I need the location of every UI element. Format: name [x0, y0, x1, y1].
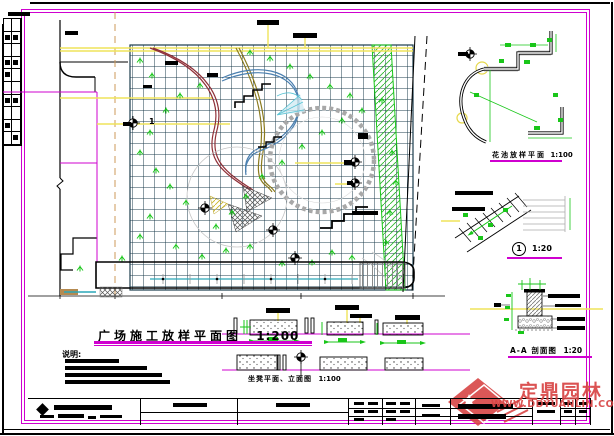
title-block-row-line	[560, 416, 590, 417]
title-block-divider	[348, 399, 349, 425]
stair-detail-bubble: 1	[512, 242, 526, 256]
titleblock-text-bar	[458, 414, 506, 419]
company-sub-bar	[40, 415, 54, 418]
titleblock-text-bar	[354, 410, 364, 413]
titleblock-text-bar	[579, 410, 587, 413]
title-block-row-line	[140, 412, 348, 413]
section-title: A-A 剖面图 1:20	[510, 345, 582, 356]
notes-line	[65, 373, 162, 377]
watermark-url: WWW.DDYUANLIN.COM	[491, 399, 614, 410]
notes-line	[65, 359, 119, 363]
bench-elevation-title: 坐凳平面、立面图 1:100	[248, 374, 341, 384]
stair-detail-scale: 1:20	[532, 244, 552, 253]
company-logo-diamond	[36, 403, 49, 416]
titleblock-text-bar	[564, 410, 572, 413]
title-block-divider	[382, 399, 383, 425]
planter-plan-underline	[490, 160, 562, 162]
notes-line	[65, 380, 170, 384]
titleblock-text-bar	[386, 410, 396, 413]
stair-plan-detail	[455, 193, 570, 252]
section-underline	[508, 356, 592, 358]
company-sub-bar	[88, 416, 96, 419]
titleblock-text-bar	[386, 402, 396, 405]
bench-elevation-title-text: 坐凳平面、立面图	[248, 375, 312, 383]
drawing-canvas	[0, 0, 614, 436]
section-scale: 1:20	[563, 346, 582, 355]
company-sub-bar	[100, 415, 122, 418]
company-name-bar	[54, 405, 112, 410]
steps-ladder	[360, 263, 405, 288]
titleblock-text-bar	[368, 402, 378, 405]
planter-plan-title: 花池放样平面 1:100	[492, 150, 573, 160]
titleblock-text-bar	[422, 404, 440, 407]
planter-plan-title-text: 花池放样平面	[492, 151, 546, 159]
stair-detail-number: 1	[516, 244, 522, 253]
titleblock-text-bar	[537, 410, 555, 413]
title-block-divider	[450, 399, 451, 425]
main-plan-underline-thin	[94, 345, 312, 346]
titleblock-text-bar	[368, 410, 378, 413]
stair-detail-underline	[507, 257, 562, 259]
section-title-text: A-A 剖面图	[510, 346, 557, 355]
title-block-divider	[415, 399, 416, 425]
titleblock-text-bar	[400, 402, 410, 405]
titleblock-text-bar	[422, 414, 440, 417]
titleblock-text-bar	[386, 418, 396, 421]
titleblock-text-bar	[354, 402, 364, 405]
titleblock-text-bar	[400, 410, 410, 413]
notes-line	[65, 366, 147, 370]
titleblock-text-bar	[173, 403, 207, 407]
main-plan-underline	[94, 341, 312, 344]
cad-sheet: 广场施工放样平面图 1:200 花池放样平面 1:100 1 1:20 A-A …	[0, 0, 614, 436]
grid-marker-number: 1	[149, 117, 155, 126]
company-sub-bar	[58, 414, 84, 418]
section-detail	[501, 278, 557, 334]
planter-wall-detail	[461, 31, 572, 142]
titleblock-text-bar	[354, 418, 364, 421]
planter-plan-scale: 1:100	[550, 151, 572, 159]
titleblock-text-bar	[276, 403, 310, 407]
bench-elevation-scale: 1:100	[318, 375, 340, 383]
